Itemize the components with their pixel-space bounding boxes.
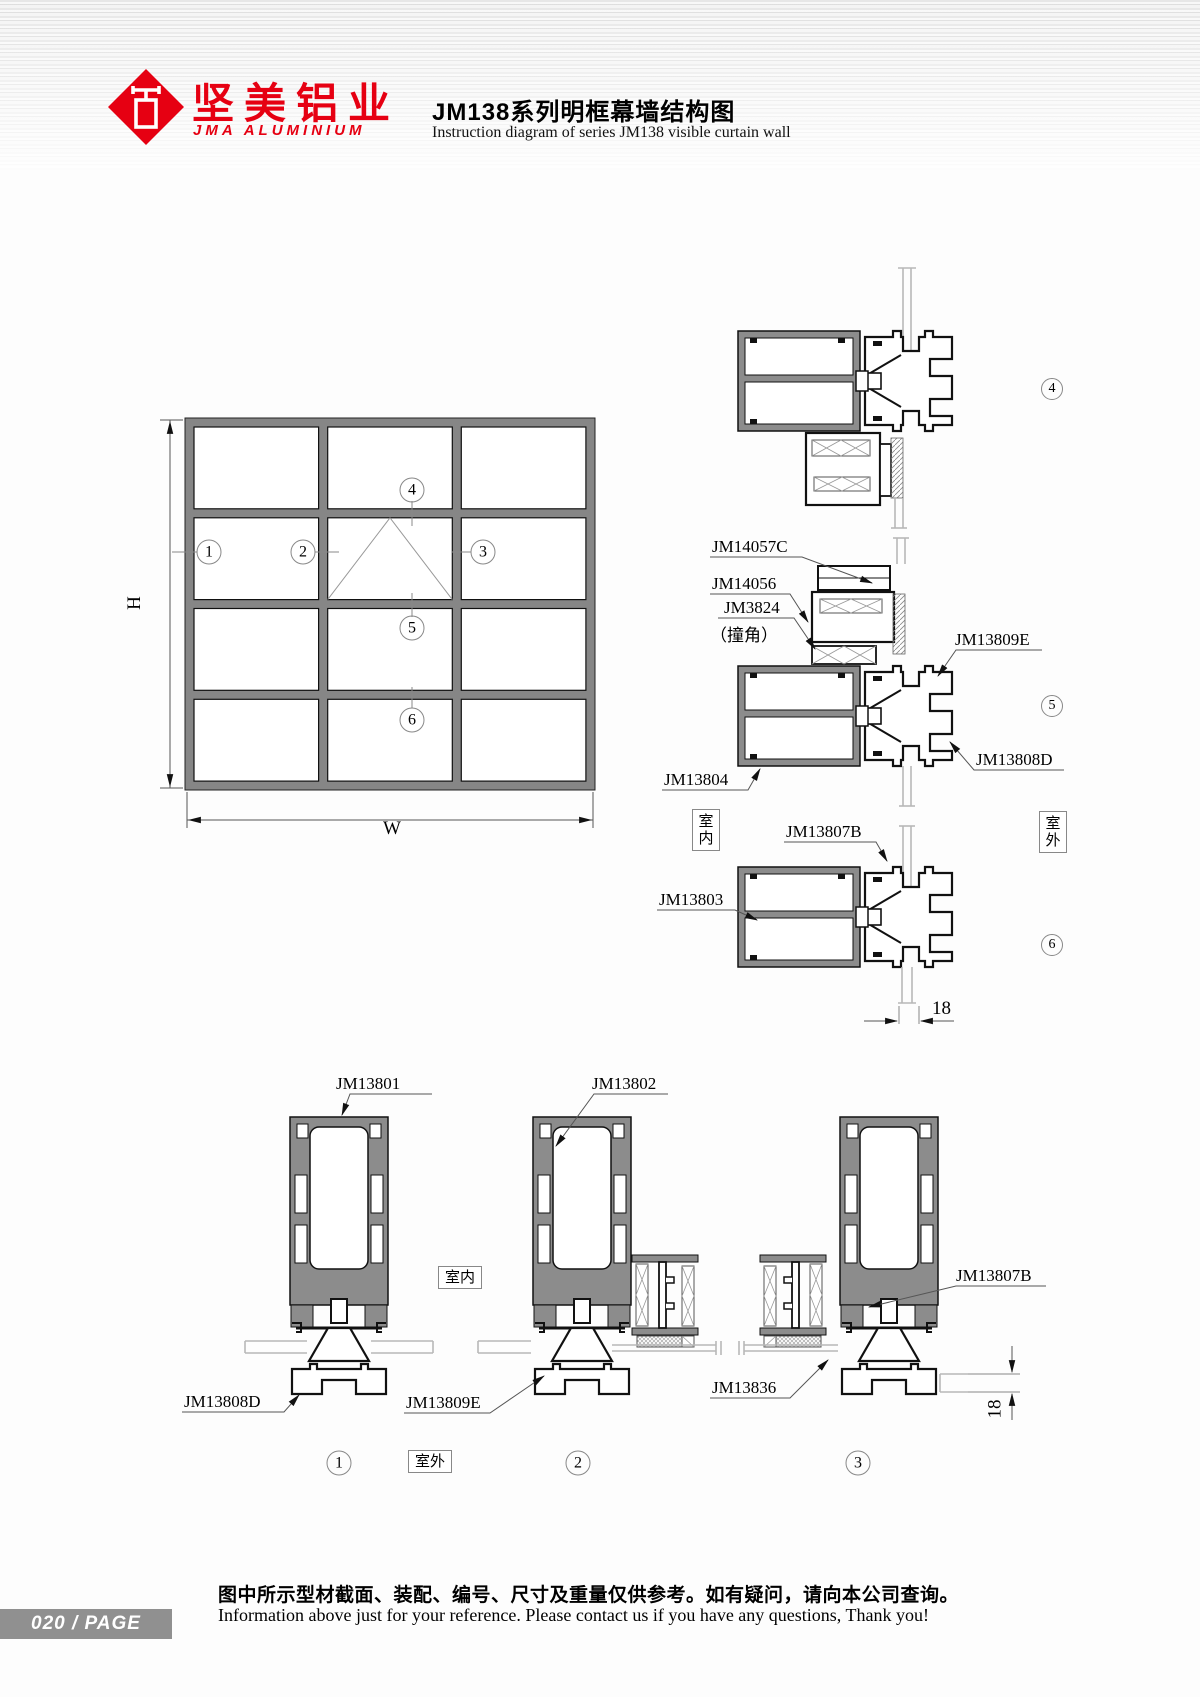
part-label-jm3824: JM3824: [724, 598, 780, 618]
callout-1: 1: [197, 540, 222, 565]
indoor-label-bottom: 室内: [438, 1266, 482, 1289]
dim-height-label: H: [124, 596, 146, 610]
catalog-page: 坚美铝业 JMA ALUMINIUM JM138系列明框幕墙结构图 Instru…: [0, 0, 1200, 1697]
part-label-jm13807b-detail: JM13807B: [786, 822, 862, 842]
detail-marker-5: 5: [1041, 695, 1063, 717]
dim-width-label: W: [383, 818, 401, 840]
part-label-jm14056: JM14056: [712, 574, 776, 594]
technical-drawing: [0, 0, 1200, 1697]
part-label-jm3824-note: （撞角）: [710, 621, 778, 646]
part-label-jm13803: JM13803: [659, 890, 723, 910]
section-marker-2: 2: [566, 1451, 591, 1476]
part-label-jm13836: JM13836: [712, 1378, 776, 1398]
callout-2: 2: [291, 540, 316, 565]
detail-marker-6: 6: [1041, 934, 1063, 956]
part-label-jm13808d-detail: JM13808D: [976, 750, 1053, 770]
part-label-jm13807b-bottom: JM13807B: [956, 1266, 1032, 1286]
dim-18-detail6: 18: [932, 998, 951, 1020]
section-marker-3: 3: [846, 1451, 871, 1476]
part-label-jm13802: JM13802: [592, 1074, 656, 1094]
part-label-jm13809e-detail: JM13809E: [955, 630, 1030, 650]
indoor-label-detail: 室内: [692, 809, 720, 851]
footer-note-en: Information above just for your referenc…: [218, 1605, 929, 1626]
dim-18-section3: 18: [985, 1400, 1007, 1419]
part-label-jm13808d-bottom: JM13808D: [184, 1392, 261, 1412]
part-label-jm14057c: JM14057C: [712, 537, 788, 557]
callout-3: 3: [471, 540, 496, 565]
callout-4: 4: [400, 478, 425, 503]
outdoor-label-bottom: 室外: [408, 1450, 452, 1473]
part-label-jm13809e-bottom: JM13809E: [406, 1393, 481, 1413]
outdoor-label-detail: 室外: [1039, 811, 1067, 853]
section-marker-1: 1: [327, 1451, 352, 1476]
page-number-badge: 020 / PAGE: [0, 1609, 172, 1639]
footer-note-cn: 图中所示型材截面、装配、编号、尺寸及重量仅供参考。如有疑问，请向本公司查询。: [218, 1580, 959, 1607]
part-label-jm13801: JM13801: [336, 1074, 400, 1094]
detail-marker-4: 4: [1041, 378, 1063, 400]
callout-5: 5: [400, 616, 425, 641]
part-label-jm13804: JM13804: [664, 770, 728, 790]
callout-6: 6: [400, 708, 425, 733]
